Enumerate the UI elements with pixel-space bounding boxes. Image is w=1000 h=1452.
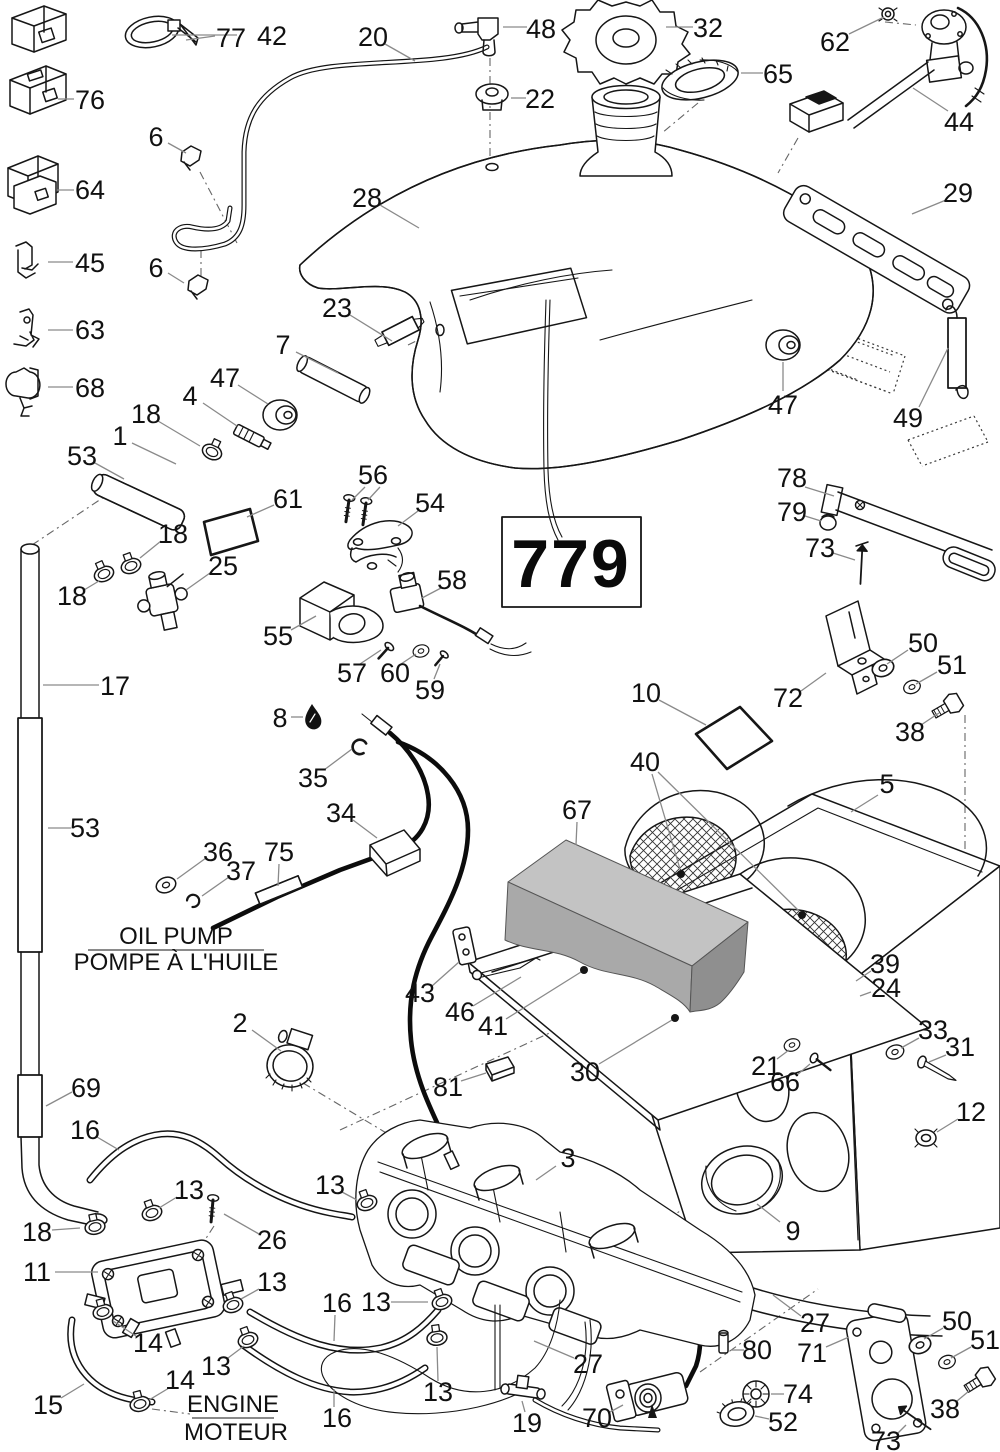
leader-line bbox=[924, 1328, 943, 1339]
callout-1: 1 bbox=[112, 421, 127, 451]
callout-53: 53 bbox=[70, 813, 100, 843]
push-pin-73-upper bbox=[855, 542, 868, 584]
callout-60: 60 bbox=[380, 658, 410, 688]
leader-line bbox=[46, 1092, 72, 1106]
gasket-10 bbox=[696, 707, 772, 769]
washer-51-upper bbox=[902, 678, 922, 696]
callout-6: 6 bbox=[148, 122, 163, 152]
callout-7: 7 bbox=[275, 330, 290, 360]
leader-line bbox=[52, 1228, 80, 1230]
callout-13: 13 bbox=[315, 1170, 345, 1200]
callout-54: 54 bbox=[415, 488, 445, 518]
leader-line bbox=[912, 200, 946, 214]
reference-dot bbox=[580, 966, 588, 974]
leader-line bbox=[659, 700, 706, 725]
leader-line bbox=[203, 403, 237, 426]
terminal-clip-63 bbox=[14, 309, 39, 347]
callout-4: 4 bbox=[182, 381, 197, 411]
callout-23: 23 bbox=[322, 293, 352, 323]
callout-58: 58 bbox=[437, 565, 467, 595]
callout-73: 73 bbox=[871, 1426, 901, 1452]
callout-64: 64 bbox=[75, 175, 105, 205]
callout-19: 19 bbox=[512, 1408, 542, 1438]
leader-line bbox=[61, 1384, 84, 1398]
leader-line bbox=[252, 1030, 281, 1051]
washer-60 bbox=[412, 643, 431, 659]
reference-dot bbox=[671, 1014, 679, 1022]
cable-spring-75 bbox=[255, 876, 302, 904]
callout-67: 67 bbox=[562, 795, 592, 825]
nut-62 bbox=[879, 8, 897, 21]
leader-line bbox=[919, 348, 948, 407]
leader-line bbox=[224, 1214, 259, 1234]
connector-housing-42 bbox=[12, 6, 66, 52]
housing-55 bbox=[300, 582, 383, 643]
callout-13: 13 bbox=[361, 1287, 391, 1317]
callout-20: 20 bbox=[358, 22, 388, 52]
engine-label-en: ENGINE bbox=[187, 1391, 279, 1418]
parts-diagram-page: 779 OIL PUMP POMPE À L'HUILE ENGINE MOTE… bbox=[0, 0, 1000, 1452]
fuel-pump-11 bbox=[85, 1238, 243, 1347]
callout-10: 10 bbox=[631, 678, 661, 708]
screws-56 bbox=[340, 494, 372, 525]
leader-line bbox=[177, 858, 206, 879]
callout-34: 34 bbox=[326, 798, 356, 828]
callout-71: 71 bbox=[797, 1338, 827, 1368]
leader-line bbox=[168, 273, 184, 283]
callout-49: 49 bbox=[893, 403, 923, 433]
callout-56: 56 bbox=[358, 460, 388, 490]
shutoff-valve-25 bbox=[90, 550, 194, 634]
leader-line bbox=[278, 864, 279, 886]
callout-16: 16 bbox=[322, 1288, 352, 1318]
leader-line bbox=[97, 1137, 119, 1150]
callout-29: 29 bbox=[943, 178, 973, 208]
callout-51: 51 bbox=[970, 1325, 1000, 1355]
oil-pump-cable bbox=[213, 714, 429, 928]
tee-fitting-19 bbox=[500, 1375, 545, 1399]
callout-12: 12 bbox=[956, 1097, 986, 1127]
leader-line bbox=[334, 1315, 335, 1341]
callout-63: 63 bbox=[75, 315, 105, 345]
callout-14: 14 bbox=[165, 1365, 195, 1395]
bracket-54 bbox=[348, 521, 412, 572]
leader-line bbox=[461, 1073, 486, 1081]
grommet-22 bbox=[476, 84, 508, 110]
callout-79: 79 bbox=[777, 497, 807, 527]
e-clip-35 bbox=[351, 738, 367, 755]
callout-24: 24 bbox=[871, 973, 901, 1003]
cable-adjuster-34 bbox=[370, 830, 420, 876]
callout-18: 18 bbox=[158, 519, 188, 549]
exploded-parts-diagram: 779 OIL PUMP POMPE À L'HUILE ENGINE MOTE… bbox=[0, 0, 1000, 1452]
hose-clip-6-lower bbox=[188, 275, 208, 299]
leader-line bbox=[132, 443, 176, 464]
leader-line bbox=[437, 1347, 438, 1381]
grommet-47-right bbox=[766, 330, 800, 360]
leader-line bbox=[432, 962, 459, 986]
callout-41: 41 bbox=[478, 1011, 508, 1041]
holder-clip-68 bbox=[6, 368, 40, 416]
leader-line bbox=[887, 650, 908, 664]
callout-28: 28 bbox=[352, 183, 382, 213]
screw-59 bbox=[432, 650, 450, 669]
callout-31: 31 bbox=[945, 1032, 975, 1062]
primer-solenoid-70 bbox=[606, 1371, 689, 1422]
callout-35: 35 bbox=[298, 763, 328, 793]
callout-44: 44 bbox=[944, 107, 974, 137]
callout-2: 2 bbox=[232, 1008, 247, 1038]
callout-61: 61 bbox=[273, 484, 303, 514]
callout-9: 9 bbox=[785, 1216, 800, 1246]
leader-line bbox=[773, 1295, 801, 1316]
callout-37: 37 bbox=[226, 856, 256, 886]
callout-22: 22 bbox=[525, 84, 555, 114]
callout-47: 47 bbox=[768, 390, 798, 420]
oil-drop-icon bbox=[305, 704, 321, 729]
leader-line bbox=[238, 385, 268, 404]
gear-clamp-2 bbox=[263, 1029, 317, 1092]
oil-pump-label-fr: POMPE À L'HUILE bbox=[74, 949, 279, 976]
callout-52: 52 bbox=[768, 1407, 798, 1437]
callout-38: 38 bbox=[895, 717, 925, 747]
plate-71 bbox=[842, 1297, 928, 1443]
callout-13: 13 bbox=[423, 1377, 453, 1407]
callout-40: 40 bbox=[630, 747, 660, 777]
rivet-79 bbox=[820, 515, 836, 530]
callout-38: 38 bbox=[930, 1394, 960, 1424]
leader-line bbox=[913, 88, 948, 111]
connector-housing-76 bbox=[10, 66, 66, 114]
callout-14: 14 bbox=[133, 1328, 163, 1358]
oil-pump-label-en: OIL PUMP bbox=[119, 923, 233, 950]
callout-81: 81 bbox=[433, 1072, 463, 1102]
bracket-43 bbox=[452, 927, 476, 966]
spring-49 bbox=[946, 306, 968, 399]
callout-17: 17 bbox=[100, 671, 130, 701]
callout-18: 18 bbox=[57, 581, 87, 611]
callout-70: 70 bbox=[582, 1403, 612, 1433]
callout-25: 25 bbox=[208, 551, 238, 581]
callout-53: 53 bbox=[67, 441, 97, 471]
terminal-clip-45 bbox=[16, 242, 38, 278]
callout-59: 59 bbox=[415, 675, 445, 705]
callout-27: 27 bbox=[800, 1308, 830, 1338]
cable-tie-77 bbox=[122, 12, 198, 53]
callout-62: 62 bbox=[820, 27, 850, 57]
pin-80 bbox=[719, 1331, 728, 1354]
callout-76: 76 bbox=[75, 85, 105, 115]
callout-66: 66 bbox=[770, 1067, 800, 1097]
callout-65: 65 bbox=[763, 59, 793, 89]
leader-line bbox=[801, 673, 826, 691]
callout-75: 75 bbox=[264, 837, 294, 867]
leader-line bbox=[186, 573, 210, 590]
callout-26: 26 bbox=[257, 1225, 287, 1255]
callout-68: 68 bbox=[75, 373, 105, 403]
leader-line bbox=[168, 143, 186, 153]
callout-32: 32 bbox=[693, 13, 723, 43]
callout-78: 78 bbox=[777, 463, 807, 493]
callout-16: 16 bbox=[70, 1115, 100, 1145]
leader-line bbox=[350, 315, 392, 341]
engine-label-fr: MOTEUR bbox=[184, 1419, 288, 1446]
leader-line bbox=[805, 516, 821, 521]
callout-72: 72 bbox=[773, 683, 803, 713]
washer-36 bbox=[154, 875, 178, 896]
callout-18: 18 bbox=[22, 1217, 52, 1247]
callout-13: 13 bbox=[257, 1267, 287, 1297]
callout-27: 27 bbox=[573, 1349, 603, 1379]
reference-dot bbox=[798, 911, 806, 919]
callout-6: 6 bbox=[148, 253, 163, 283]
callout-48: 48 bbox=[526, 14, 556, 44]
leader-line bbox=[826, 1337, 849, 1347]
connector-housing-64 bbox=[8, 156, 58, 214]
callout-74: 74 bbox=[783, 1379, 813, 1409]
callout-8: 8 bbox=[272, 703, 287, 733]
hose-clip-6-top bbox=[181, 146, 201, 170]
grommet-12 bbox=[915, 1129, 937, 1147]
callout-3: 3 bbox=[560, 1143, 575, 1173]
callout-50: 50 bbox=[942, 1306, 972, 1336]
bracket-72 bbox=[826, 601, 884, 694]
callout-30: 30 bbox=[570, 1057, 600, 1087]
callout-11: 11 bbox=[23, 1257, 51, 1287]
leader-line bbox=[951, 1347, 971, 1358]
callout-16: 16 bbox=[322, 1403, 352, 1433]
leader-line bbox=[916, 672, 937, 684]
leader-line bbox=[353, 820, 377, 838]
leader-line bbox=[849, 17, 884, 34]
leader-line bbox=[755, 1416, 769, 1419]
e-clip-37 bbox=[186, 892, 202, 908]
callout-13: 13 bbox=[201, 1351, 231, 1381]
callout-46: 46 bbox=[445, 997, 475, 1027]
callout-15: 15 bbox=[33, 1390, 63, 1420]
callout-73: 73 bbox=[805, 533, 835, 563]
callout-33: 33 bbox=[918, 1015, 948, 1045]
callout-47: 47 bbox=[210, 363, 240, 393]
leader-line bbox=[576, 822, 577, 845]
leader-line bbox=[324, 749, 352, 770]
callout-50: 50 bbox=[908, 628, 938, 658]
leader-line bbox=[851, 795, 878, 812]
leader-line bbox=[385, 44, 415, 61]
callout-43: 43 bbox=[405, 978, 435, 1008]
leader-line bbox=[833, 553, 855, 560]
leader-line bbox=[534, 1341, 574, 1358]
reference-dot bbox=[677, 870, 685, 878]
callout-69: 69 bbox=[71, 1073, 101, 1103]
leader-line bbox=[202, 877, 229, 896]
callout-77: 77 bbox=[216, 23, 246, 53]
latch-arm-78 bbox=[821, 485, 998, 584]
hose-16-left bbox=[90, 1134, 352, 1217]
callout-55: 55 bbox=[263, 621, 293, 651]
callout-51: 51 bbox=[937, 650, 967, 680]
callout-45: 45 bbox=[75, 248, 105, 278]
callout-18: 18 bbox=[131, 399, 161, 429]
code-text: 779 bbox=[511, 526, 630, 602]
fuel-cap-32 bbox=[562, 0, 690, 84]
screw-26 bbox=[206, 1194, 219, 1222]
callout-80: 80 bbox=[742, 1335, 772, 1365]
callout-57: 57 bbox=[337, 658, 367, 688]
bolt-38-upper bbox=[929, 691, 965, 723]
leader-line bbox=[158, 421, 200, 446]
callout-5: 5 bbox=[879, 769, 894, 799]
callout-42: 42 bbox=[257, 21, 287, 51]
callout-13: 13 bbox=[174, 1175, 204, 1205]
